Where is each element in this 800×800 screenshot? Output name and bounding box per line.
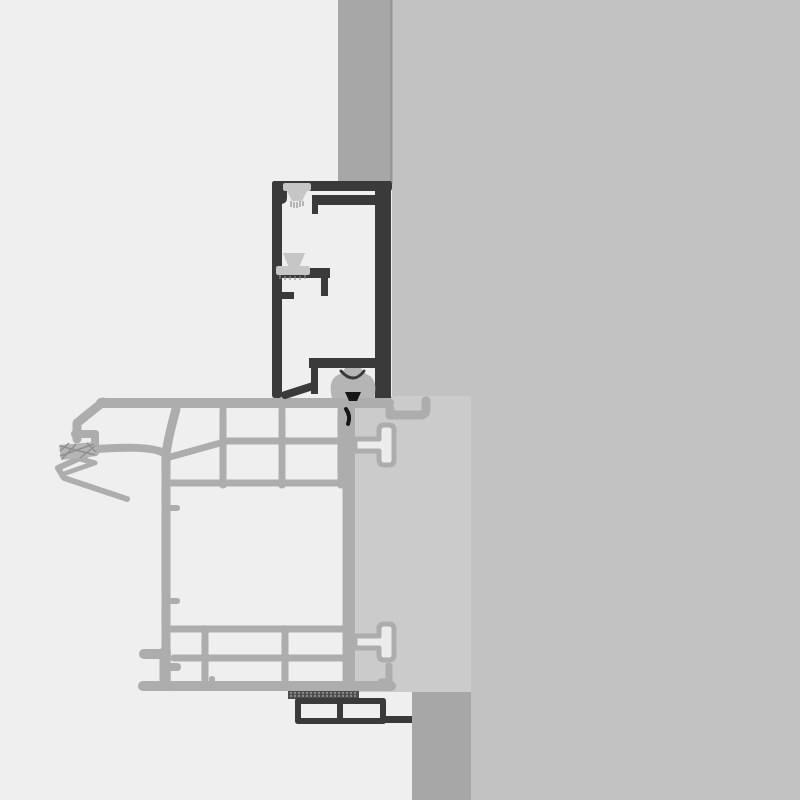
frame-left-wall xyxy=(272,181,282,398)
frame-wall-notch xyxy=(282,292,294,299)
frame-inner-ledge-lip xyxy=(312,203,318,214)
frame-inner-ledge xyxy=(312,195,376,205)
frame-left-lip xyxy=(272,191,287,204)
brush-seal-mid-cap xyxy=(276,266,310,275)
sash-mid-web-left xyxy=(95,448,162,452)
seal-strip xyxy=(288,691,359,699)
frame-mid-bar-stub xyxy=(321,276,328,296)
sill-box-extension xyxy=(383,716,412,723)
frame-bottom-inner-bar xyxy=(309,358,376,368)
frame-right-wall xyxy=(375,181,391,398)
cross-section-drawing xyxy=(0,0,800,800)
lintel-strip xyxy=(338,0,392,184)
lintel-strip-edge-line xyxy=(390,0,393,184)
sill-strip xyxy=(412,692,471,800)
brush-seal-top-cap xyxy=(283,183,311,191)
